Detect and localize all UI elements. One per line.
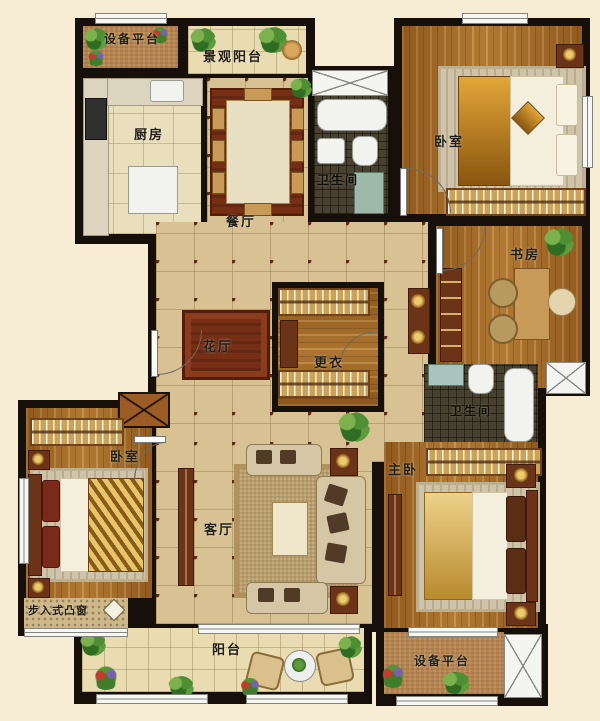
toilet — [468, 364, 494, 394]
window — [582, 96, 593, 168]
window — [408, 627, 498, 637]
plant-icon — [338, 412, 370, 442]
room-label-flower-hall: 花厅 — [203, 336, 233, 355]
plant-icon — [290, 78, 312, 98]
bed-blanket — [88, 478, 144, 572]
tv-cabinet — [388, 494, 402, 596]
armchair — [488, 314, 518, 344]
bed-blanket — [458, 76, 512, 186]
pillow — [42, 526, 60, 568]
ac-platform-box-bottom-right — [504, 634, 542, 698]
room-label-bathroom-right: 卫生间 — [450, 402, 492, 419]
pillow — [556, 134, 578, 176]
room-label-living-room: 客厅 — [204, 519, 234, 538]
room-label-study: 书房 — [510, 244, 540, 263]
wardrobe — [30, 418, 124, 446]
dining-chair — [291, 140, 304, 162]
ac-platform-box-right — [546, 362, 586, 394]
toilet — [352, 136, 378, 166]
bed-sheet — [60, 478, 90, 572]
desk — [514, 268, 550, 340]
coffee-table — [272, 502, 308, 556]
bookshelf — [440, 268, 462, 362]
bathroom-sink — [428, 364, 464, 386]
pot-icon — [411, 330, 425, 344]
sofa-cushion — [280, 450, 296, 464]
plant-icon — [86, 50, 106, 66]
dining-chair — [212, 108, 225, 130]
bed-headboard — [28, 474, 42, 576]
window — [396, 696, 498, 706]
window — [95, 13, 167, 24]
lamp-icon — [32, 581, 44, 593]
tv-cabinet — [178, 468, 194, 586]
kitchen-table — [128, 166, 178, 214]
bed-blanket — [424, 492, 474, 600]
sofa-cushion — [256, 450, 272, 464]
bed-headboard — [526, 490, 538, 602]
dining-chair — [244, 88, 272, 101]
pot-icon — [411, 294, 425, 308]
plant-icon — [544, 228, 574, 256]
dressing-bench — [280, 320, 298, 368]
pillow — [506, 496, 526, 542]
dining-chair — [212, 172, 225, 194]
window — [24, 628, 128, 637]
room-label-bedroom-top-right: 卧室 — [434, 131, 464, 150]
stove-icon — [85, 98, 107, 140]
pillow — [556, 84, 578, 126]
room-label-master-bedroom: 主卧 — [388, 459, 418, 478]
lamp-icon — [336, 592, 350, 606]
lamp-icon — [32, 453, 44, 465]
bathtub — [317, 99, 387, 131]
dining-table — [226, 100, 290, 204]
ac-platform-box-top — [312, 70, 388, 96]
pillow — [42, 480, 60, 522]
room-label-kitchen: 厨房 — [134, 124, 164, 143]
plant-icon — [338, 636, 362, 658]
floor-plan: 设备平台 景观阳台 厨房 餐厅 卫生间 卧室 书房 花厅 更衣 卫生间 卧室 主… — [0, 0, 600, 721]
room-label-equipment-platform-top: 设备平台 — [104, 30, 160, 47]
plant-icon — [442, 672, 470, 694]
wardrobe — [278, 288, 370, 316]
dining-chair — [212, 140, 225, 162]
room-label-bathroom-top: 卫生间 — [317, 171, 359, 188]
sofa-cushion — [258, 588, 274, 602]
room-label-equipment-platform-bottom: 设备平台 — [414, 652, 470, 669]
pillow — [506, 548, 526, 594]
lamp-icon — [514, 606, 528, 620]
plant-icon — [380, 664, 406, 688]
pipe-shaft-box — [118, 392, 170, 428]
dining-chair — [291, 108, 304, 130]
lamp-icon — [514, 468, 528, 482]
window — [96, 694, 208, 704]
sliding-door — [198, 624, 360, 634]
lamp-icon — [563, 48, 576, 61]
desk-chair — [548, 288, 576, 316]
potted-plant-icon — [292, 658, 306, 672]
plant-icon — [92, 666, 120, 690]
room-label-dining: 餐厅 — [226, 211, 256, 230]
sofa-cushion — [325, 542, 348, 563]
room-label-scenic-balcony: 景观阳台 — [203, 46, 263, 65]
dining-chair — [291, 172, 304, 194]
armchair — [488, 278, 518, 308]
room-label-bay-window: 步入式凸窗 — [28, 602, 88, 618]
bathtub — [504, 368, 534, 442]
lamp-icon — [336, 454, 350, 468]
window — [246, 694, 348, 704]
sofa-cushion — [284, 588, 300, 602]
room-label-dressing: 更衣 — [314, 352, 344, 371]
wardrobe — [278, 370, 370, 398]
window — [462, 13, 528, 24]
pot-table-icon — [282, 40, 302, 60]
bed-sheet — [472, 492, 508, 600]
bathroom-sink — [317, 138, 345, 164]
room-label-bedroom-left: 卧室 — [110, 446, 140, 465]
kitchen-sink — [150, 80, 184, 102]
room-label-balcony-bottom: 阳台 — [212, 639, 242, 658]
window — [19, 478, 29, 564]
wardrobe — [446, 188, 586, 216]
